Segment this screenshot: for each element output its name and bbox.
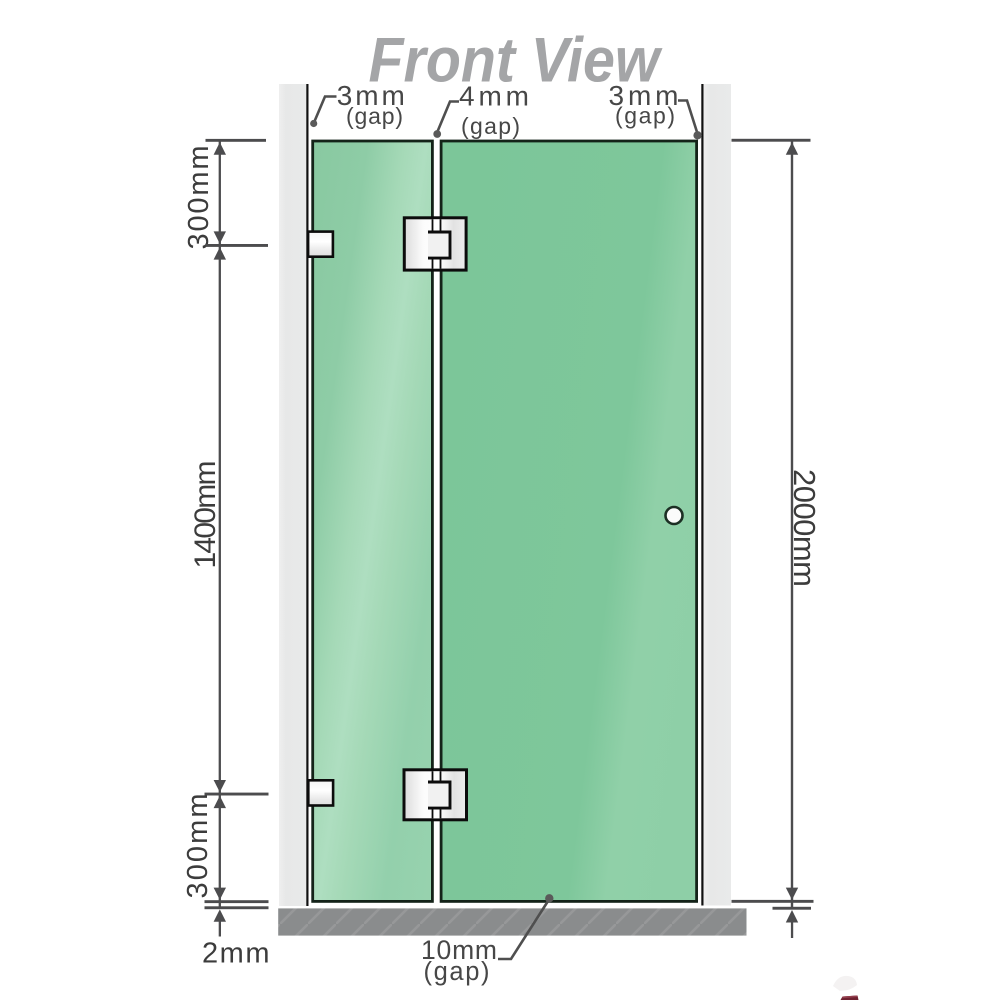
svg-text:300mm: 300mm (182, 794, 214, 899)
svg-text:2000mm: 2000mm (787, 469, 822, 587)
svg-text:4mm: 4mm (459, 81, 529, 112)
svg-text:2mm: 2mm (202, 938, 270, 970)
svg-text:300mm: 300mm (183, 146, 215, 250)
svg-text:(gap): (gap) (346, 103, 403, 129)
svg-text:1400mm: 1400mm (189, 461, 222, 569)
